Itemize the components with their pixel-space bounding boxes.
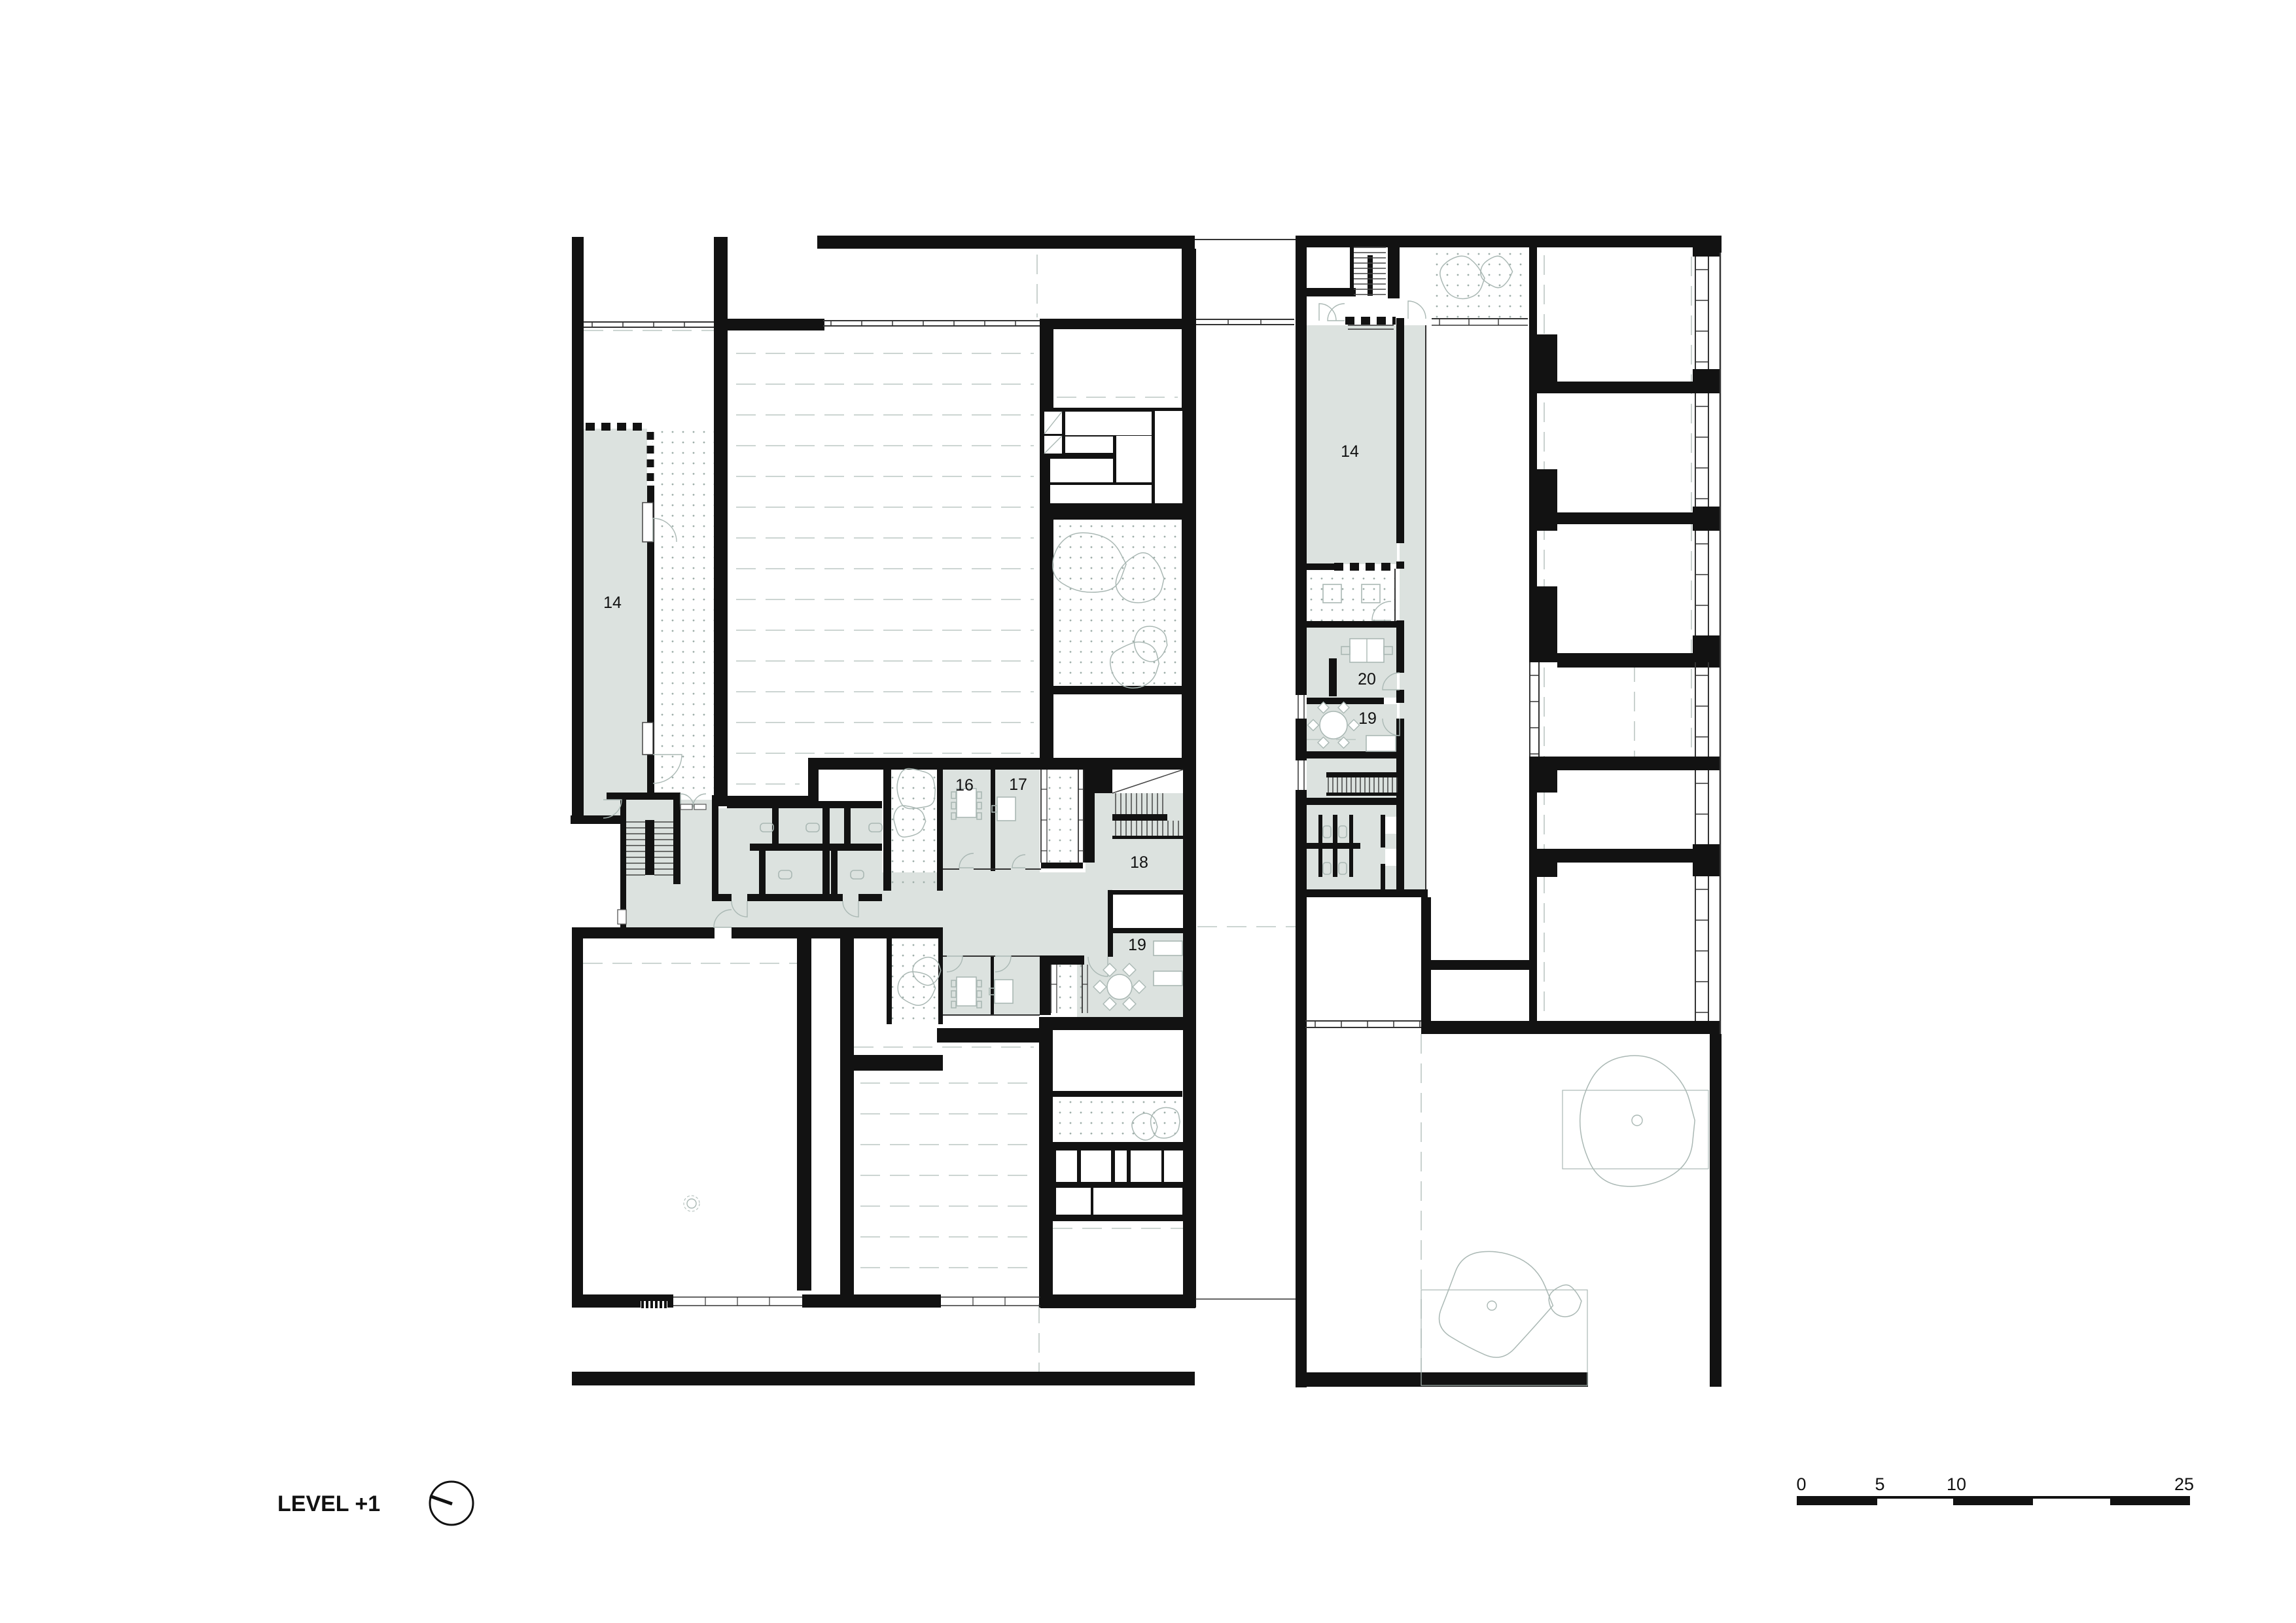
svg-text:0: 0 bbox=[1796, 1474, 1806, 1494]
svg-text:14: 14 bbox=[1341, 442, 1359, 461]
svg-text:LEVEL +1: LEVEL +1 bbox=[277, 1491, 380, 1516]
svg-text:19: 19 bbox=[1358, 709, 1377, 728]
svg-text:10: 10 bbox=[1947, 1474, 1966, 1494]
svg-text:18: 18 bbox=[1130, 853, 1148, 872]
svg-text:14: 14 bbox=[603, 594, 622, 612]
svg-text:19: 19 bbox=[1128, 936, 1146, 954]
svg-text:20: 20 bbox=[1358, 670, 1376, 688]
svg-text:5: 5 bbox=[1875, 1474, 1884, 1494]
svg-text:25: 25 bbox=[2174, 1474, 2194, 1494]
svg-text:17: 17 bbox=[1009, 776, 1027, 794]
svg-text:16: 16 bbox=[955, 776, 974, 794]
